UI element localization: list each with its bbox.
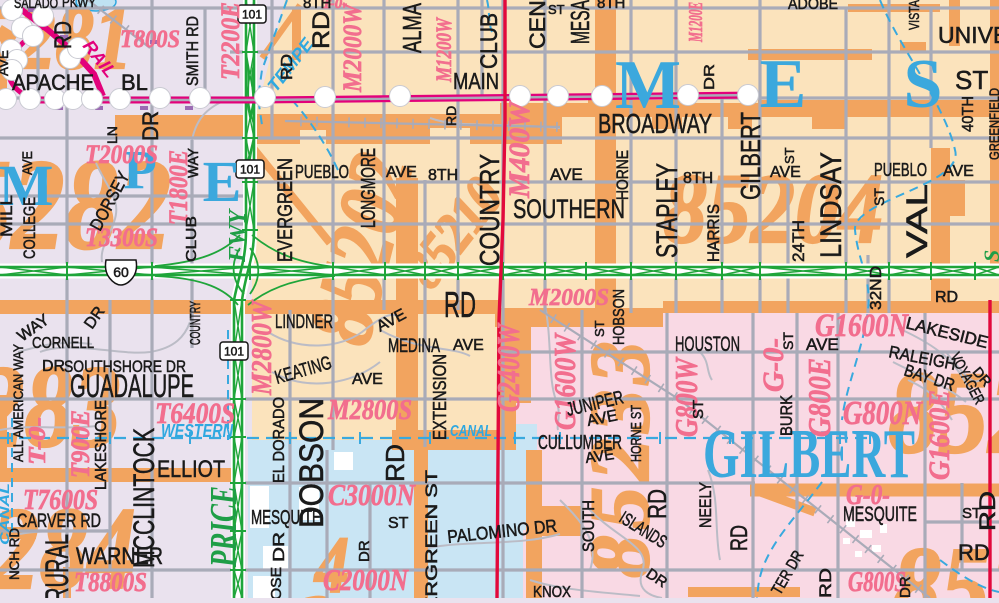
- svg-text:DR: DR: [701, 64, 718, 90]
- svg-text:STAPLEY: STAPLEY: [651, 163, 684, 258]
- svg-text:T8800S: T8800S: [74, 567, 147, 597]
- svg-text:VISTA: VISTA: [906, 0, 923, 30]
- svg-text:AVE: AVE: [386, 164, 417, 181]
- svg-text:RD: RD: [816, 568, 835, 598]
- svg-text:ALMA: ALMA: [397, 3, 427, 53]
- svg-text:LINDNER: LINDNER: [275, 312, 333, 333]
- svg-text:EVERGREEN ST: EVERGREEN ST: [422, 470, 441, 598]
- svg-text:OSE: OSE: [268, 567, 285, 598]
- svg-text:SOUTHSHORE DR: SOUTHSHORE DR: [64, 357, 186, 376]
- svg-text:EXTENSION: EXTENSION: [430, 354, 450, 440]
- svg-text:ST: ST: [690, 400, 707, 419]
- svg-text:LN: LN: [104, 126, 120, 144]
- svg-text:M2800S: M2800S: [327, 395, 412, 426]
- svg-text:S: S: [904, 46, 943, 123]
- svg-text:BROADWAY: BROADWAY: [598, 108, 712, 139]
- svg-text:RD: RD: [444, 284, 476, 325]
- svg-text:FWY: FWY: [225, 208, 251, 263]
- svg-text:C2000N: C2000N: [323, 562, 409, 597]
- svg-text:T2000S: T2000S: [85, 140, 158, 169]
- svg-text:WAY: WAY: [185, 148, 202, 178]
- svg-text:BURK: BURK: [777, 394, 796, 436]
- svg-text:ALL AMERICAN WAY: ALL AMERICAN WAY: [10, 343, 26, 462]
- svg-text:E: E: [760, 46, 807, 123]
- svg-text:60: 60: [113, 264, 129, 280]
- svg-text:COLLEGE: COLLEGE: [20, 197, 39, 259]
- svg-text:GREENFIELD: GREENFIELD: [986, 88, 999, 160]
- svg-text:CENTER: CENTER: [525, 0, 550, 49]
- svg-text:101: 101: [240, 163, 260, 177]
- svg-text:ST: ST: [871, 188, 887, 206]
- svg-text:SOUTHERN: SOUTHERN: [513, 194, 625, 224]
- svg-text:G1600E: G1600E: [923, 390, 956, 480]
- svg-text:AVE: AVE: [19, 151, 35, 175]
- svg-text:G800N: G800N: [843, 395, 923, 432]
- svg-text:8TH: 8TH: [597, 0, 625, 12]
- svg-text:T900E: T900E: [66, 410, 95, 478]
- svg-text:M1200E: M1200E: [685, 2, 707, 43]
- svg-text:SALADO: SALADO: [14, 0, 58, 12]
- svg-text:AVE: AVE: [770, 164, 801, 181]
- svg-text:MCCLINTOCK: MCCLINTOCK: [128, 428, 161, 568]
- svg-text:HORNE: HORNE: [613, 150, 632, 200]
- svg-text:ST: ST: [592, 320, 607, 337]
- svg-text:LONGMORE: LONGMORE: [358, 148, 380, 228]
- svg-text:NEELY: NEELY: [696, 482, 715, 528]
- svg-text:PUEBLO: PUEBLO: [295, 162, 349, 182]
- svg-text:VAL: VAL: [901, 184, 934, 258]
- svg-text:EVERGREEN: EVERGREEN: [274, 158, 297, 262]
- svg-text:ELLIOT: ELLIOT: [157, 456, 225, 483]
- svg-text:DR: DR: [356, 540, 373, 562]
- svg-text:EL DORADO: EL DORADO: [271, 397, 288, 483]
- svg-text:8TH: 8TH: [428, 167, 458, 184]
- svg-text:G800W: G800W: [668, 356, 704, 437]
- svg-text:DR: DR: [138, 111, 163, 141]
- svg-text:PRICE: PRICE: [203, 486, 245, 568]
- svg-text:ST: ST: [548, 2, 565, 17]
- svg-text:LAKESHORE: LAKESHORE: [93, 400, 110, 490]
- svg-text:DR: DR: [42, 358, 65, 375]
- svg-text:AVE: AVE: [806, 335, 839, 354]
- svg-text:S: S: [979, 250, 999, 262]
- svg-text:SMITH RD: SMITH RD: [183, 16, 202, 86]
- svg-text:T-0-: T-0-: [25, 417, 51, 465]
- svg-text:M2000S: M2000S: [528, 285, 609, 311]
- svg-text:MAIN: MAIN: [453, 68, 499, 94]
- svg-text:MEDINA: MEDINA: [388, 336, 440, 357]
- svg-text:RD: RD: [279, 54, 296, 80]
- svg-text:G800E: G800E: [801, 358, 837, 437]
- svg-text:AVE: AVE: [0, 50, 11, 76]
- svg-text:MILL: MILL: [0, 195, 16, 237]
- svg-text:DR: DR: [271, 532, 288, 562]
- svg-text:PUEBLO: PUEBLO: [874, 160, 927, 180]
- svg-text:ST: ST: [782, 147, 797, 164]
- svg-text:CLUB: CLUB: [476, 13, 503, 69]
- svg-text:RD: RD: [308, 11, 335, 49]
- svg-text:CARVER RD: CARVER RD: [17, 511, 101, 532]
- svg-text:ST: ST: [955, 65, 988, 95]
- svg-text:DOBSON: DOBSON: [293, 398, 331, 528]
- svg-text:40TH: 40TH: [960, 96, 977, 132]
- svg-text:HOBSON: HOBSON: [611, 289, 628, 345]
- svg-text:SOUTH: SOUTH: [579, 500, 598, 552]
- svg-text:DR: DR: [897, 576, 914, 598]
- svg-text:M2800W: M2800W: [247, 299, 278, 396]
- svg-text:RD: RD: [975, 491, 999, 531]
- svg-text:ST: ST: [780, 332, 796, 350]
- svg-text:HORNE ST: HORNE ST: [628, 405, 645, 462]
- svg-text:RD: RD: [958, 540, 990, 565]
- svg-text:RURAL: RURAL: [39, 534, 75, 598]
- svg-text:AVE: AVE: [550, 165, 583, 184]
- svg-text:8TH: 8TH: [683, 170, 713, 187]
- svg-text:101: 101: [224, 345, 244, 359]
- svg-text:KNOX: KNOX: [533, 584, 571, 598]
- svg-text:MESQUITE: MESQUITE: [843, 503, 917, 526]
- svg-text:M2000W: M2000W: [338, 2, 367, 93]
- svg-text:NCH RD: NCH RD: [6, 528, 22, 580]
- svg-text:8TH: 8TH: [303, 0, 331, 12]
- svg-text:HARRIS: HARRIS: [704, 204, 723, 262]
- svg-text:AVE: AVE: [453, 337, 484, 354]
- svg-text:M400W: M400W: [503, 100, 536, 199]
- svg-text:AVE: AVE: [352, 371, 383, 388]
- svg-text:GILBERT: GILBERT: [735, 112, 766, 200]
- svg-text:BL: BL: [121, 70, 148, 95]
- svg-text:APACHE: APACHE: [12, 70, 94, 95]
- svg-text:G2400W: G2400W: [490, 322, 526, 412]
- svg-text:ST: ST: [388, 515, 409, 532]
- svg-text:PKWY: PKWY: [62, 0, 97, 10]
- svg-text:24TH: 24TH: [789, 220, 808, 262]
- svg-text:UNIVERSITY: UNIVERSITY: [938, 22, 999, 48]
- svg-text:RD: RD: [642, 489, 672, 519]
- svg-text:COUNTRY: COUNTRY: [187, 301, 204, 345]
- svg-text:COUNTRY: COUNTRY: [474, 154, 505, 266]
- svg-text:AVE: AVE: [943, 163, 974, 180]
- svg-text:ADOBE: ADOBE: [788, 0, 838, 13]
- svg-text:E: E: [203, 149, 242, 214]
- svg-text:HOUSTON: HOUSTON: [675, 333, 740, 356]
- svg-text:T800S: T800S: [120, 26, 180, 53]
- svg-text:CLUB: CLUB: [183, 216, 200, 262]
- svg-text:RD: RD: [380, 444, 410, 482]
- svg-text:RD: RD: [726, 525, 753, 551]
- svg-text:LINDSAY: LINDSAY: [815, 152, 848, 258]
- svg-text:MESA: MESA: [565, 0, 595, 44]
- svg-text:CANAL: CANAL: [450, 423, 492, 440]
- svg-text:RD: RD: [935, 289, 958, 306]
- svg-text:RD: RD: [443, 106, 459, 126]
- svg-text:WESTERN: WESTERN: [161, 421, 234, 441]
- svg-text:T2200E: T2200E: [216, 2, 245, 80]
- svg-text:32ND: 32ND: [868, 266, 885, 310]
- svg-text:101: 101: [242, 8, 262, 22]
- svg-text:RD: RD: [50, 21, 77, 49]
- svg-text:CORNELL: CORNELL: [32, 335, 94, 352]
